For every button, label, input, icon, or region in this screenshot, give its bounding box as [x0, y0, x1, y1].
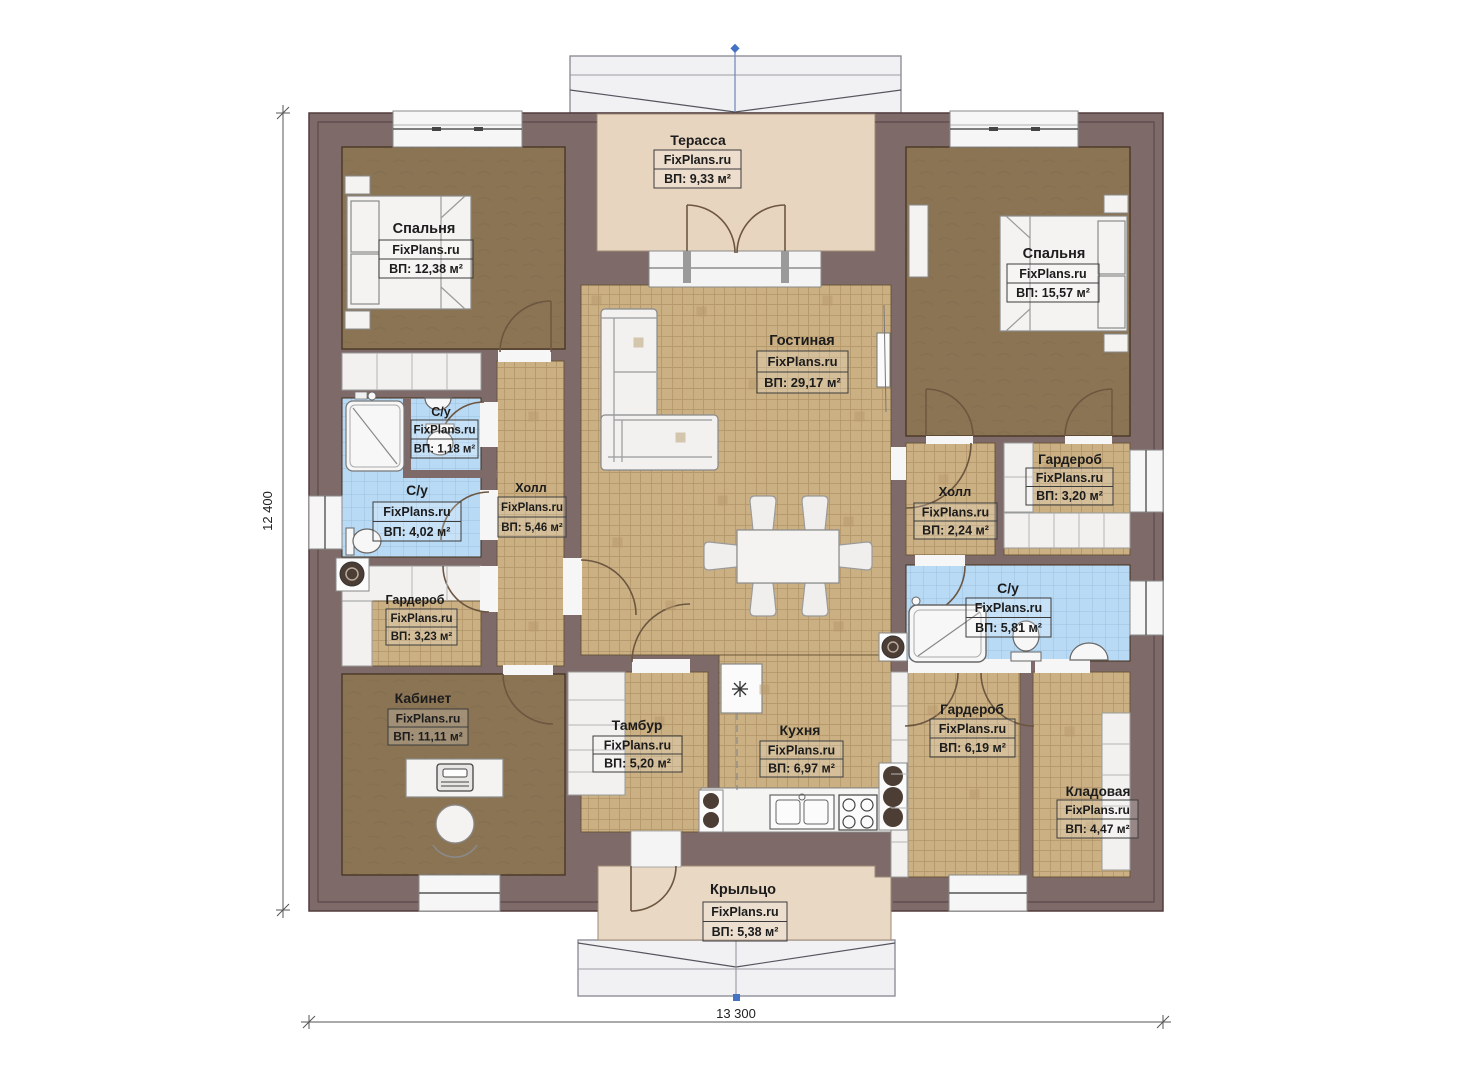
svg-text:ВП: 4,02 м²: ВП: 4,02 м²	[384, 525, 451, 539]
svg-text:С/у: С/у	[997, 580, 1019, 596]
svg-text:С/у: С/у	[406, 482, 428, 498]
svg-text:FixPlans.ru: FixPlans.ru	[1019, 267, 1086, 281]
svg-text:ВП: 15,57 м²: ВП: 15,57 м²	[1016, 286, 1090, 300]
svg-text:13 300: 13 300	[716, 1006, 756, 1021]
svg-text:Гардероб: Гардероб	[385, 593, 444, 607]
svg-text:FixPlans.ru: FixPlans.ru	[414, 425, 476, 437]
svg-text:Кладовая: Кладовая	[1066, 784, 1131, 799]
svg-text:FixPlans.ru: FixPlans.ru	[711, 905, 778, 919]
svg-text:ВП: 3,23 м²: ВП: 3,23 м²	[391, 631, 453, 643]
svg-text:FixPlans.ru: FixPlans.ru	[1036, 471, 1103, 485]
svg-text:ВП: 11,11 м²: ВП: 11,11 м²	[393, 729, 463, 743]
svg-text:FixPlans.ru: FixPlans.ru	[604, 739, 671, 753]
svg-text:FixPlans.ru: FixPlans.ru	[396, 711, 461, 725]
svg-text:FixPlans.ru: FixPlans.ru	[922, 506, 989, 520]
svg-text:Крыльцо: Крыльцо	[710, 882, 776, 898]
svg-text:FixPlans.ru: FixPlans.ru	[1065, 803, 1130, 817]
svg-text:Кабинет: Кабинет	[395, 690, 452, 706]
svg-text:Холл: Холл	[939, 484, 972, 499]
svg-text:ВП: 4,47 м²: ВП: 4,47 м²	[1065, 822, 1129, 836]
svg-text:С/у: С/у	[431, 405, 451, 419]
svg-text:FixPlans.ru: FixPlans.ru	[664, 153, 731, 167]
svg-text:FixPlans.ru: FixPlans.ru	[391, 613, 453, 625]
svg-text:ВП: 5,38 м²: ВП: 5,38 м²	[712, 925, 779, 939]
svg-text:Спальня: Спальня	[393, 221, 456, 237]
svg-text:FixPlans.ru: FixPlans.ru	[975, 601, 1042, 615]
svg-text:ВП: 6,97 м²: ВП: 6,97 м²	[768, 762, 835, 776]
svg-text:FixPlans.ru: FixPlans.ru	[383, 505, 450, 519]
svg-text:ВП: 5,46 м²: ВП: 5,46 м²	[501, 522, 563, 534]
svg-text:Гостиная: Гостиная	[769, 333, 835, 349]
svg-text:FixPlans.ru: FixPlans.ru	[768, 744, 835, 758]
svg-text:FixPlans.ru: FixPlans.ru	[392, 243, 459, 257]
svg-text:ВП: 3,20 м²: ВП: 3,20 м²	[1036, 489, 1103, 503]
svg-text:FixPlans.ru: FixPlans.ru	[939, 722, 1006, 736]
svg-text:Гардероб: Гардероб	[1038, 452, 1102, 467]
svg-text:Холл: Холл	[515, 481, 546, 495]
svg-text:Тамбур: Тамбур	[612, 717, 663, 733]
svg-text:ВП: 29,17 м²: ВП: 29,17 м²	[764, 375, 841, 390]
svg-text:ВП: 6,19 м²: ВП: 6,19 м²	[939, 741, 1006, 755]
svg-text:Кухня: Кухня	[780, 722, 821, 738]
svg-text:ВП: 5,81 м²: ВП: 5,81 м²	[975, 621, 1042, 635]
svg-text:12 400: 12 400	[260, 491, 275, 531]
svg-text:FixPlans.ru: FixPlans.ru	[501, 502, 563, 514]
svg-text:ВП: 2,24 м²: ВП: 2,24 м²	[922, 524, 989, 538]
svg-text:ВП: 12,38 м²: ВП: 12,38 м²	[389, 262, 463, 276]
svg-text:Гардероб: Гардероб	[940, 702, 1004, 717]
svg-text:ВП: 9,33 м²: ВП: 9,33 м²	[664, 172, 731, 186]
svg-text:Терасса: Терасса	[670, 132, 726, 148]
svg-text:FixPlans.ru: FixPlans.ru	[767, 354, 837, 369]
svg-text:ВП: 5,20 м²: ВП: 5,20 м²	[604, 757, 671, 771]
svg-text:ВП: 1,18 м²: ВП: 1,18 м²	[414, 444, 476, 456]
svg-text:Спальня: Спальня	[1023, 246, 1086, 262]
